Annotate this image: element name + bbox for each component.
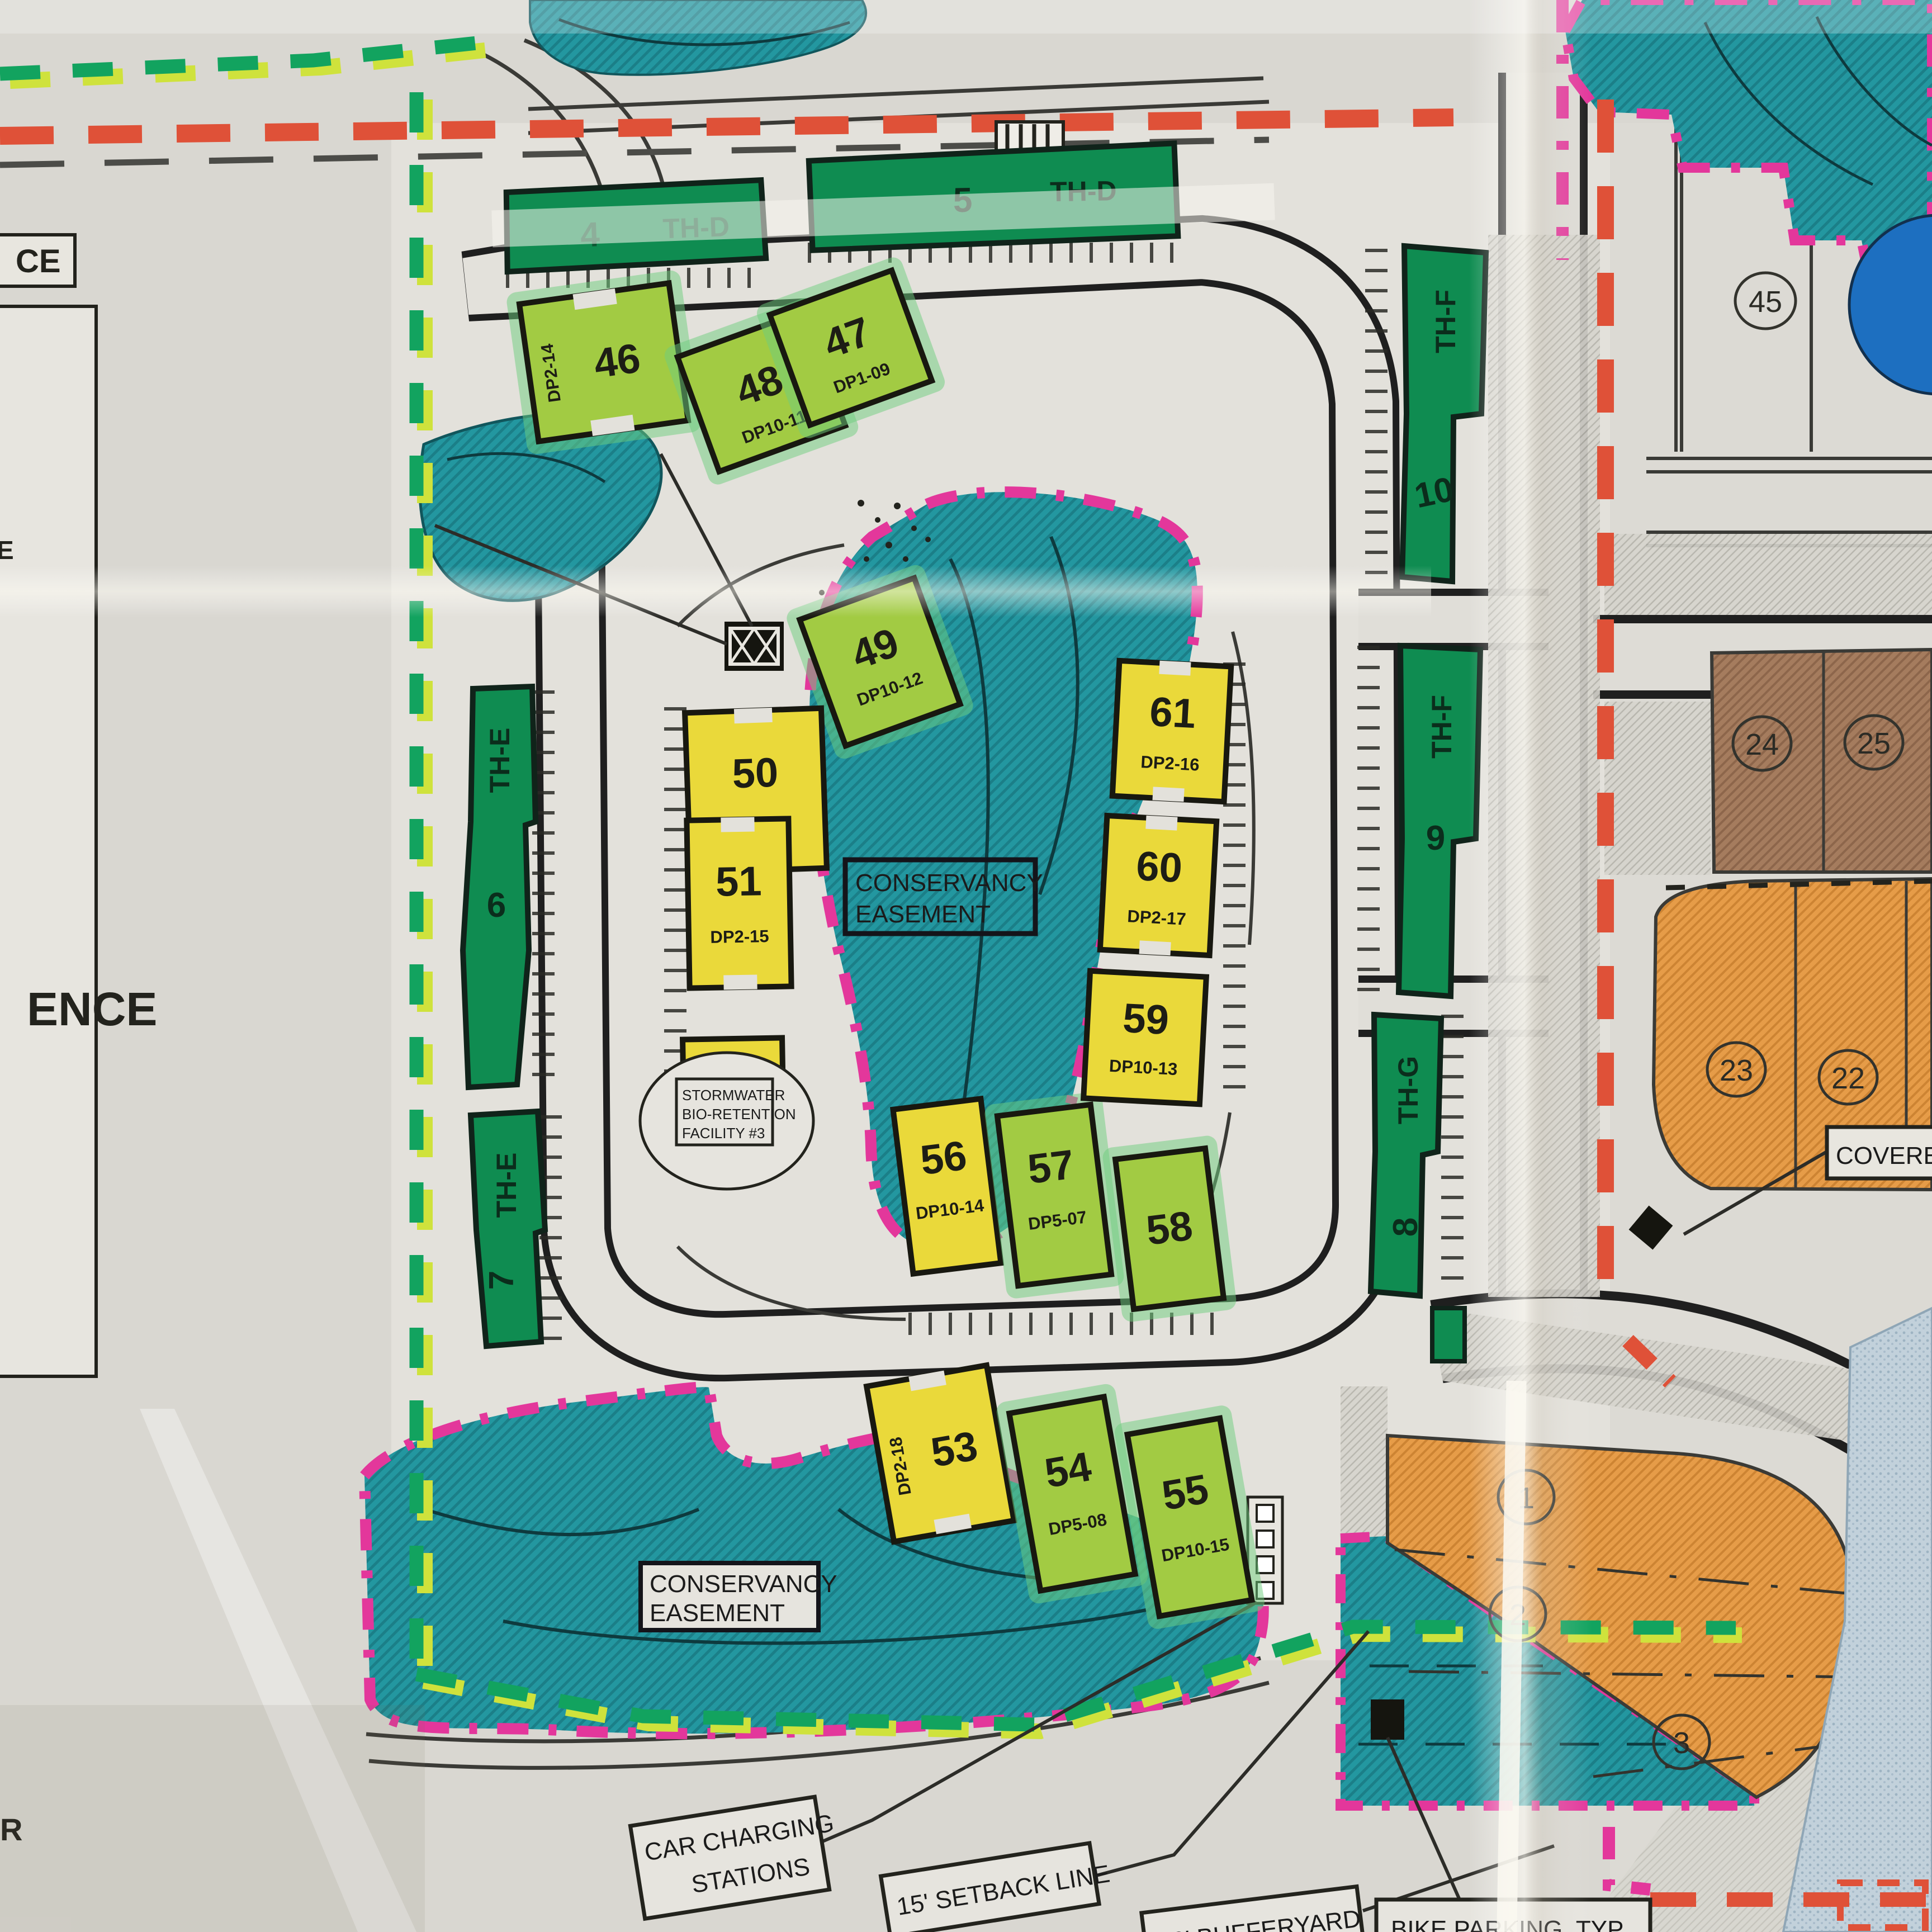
site-plan-map: CE E ENCE R [0,0,1932,1932]
building-58: 58 [1102,1135,1238,1323]
building-50-number: 50 [731,749,779,797]
townhouse-5-number: 5 [953,181,973,220]
townhouse-6-code: TH-E [484,728,515,793]
svg-text:2: 2 [1509,1598,1526,1632]
townhouse-block-6: TH-E 6 [463,686,536,1087]
bike-parking-icon [1371,1699,1404,1740]
building-55-number: 55 [1158,1465,1211,1519]
site-plan-photo: CE E ENCE R [0,0,1932,1932]
svg-text:STORMWATER: STORMWATER [682,1087,785,1104]
townhouse-9-number: 9 [1426,819,1445,858]
bridge-icon [724,622,784,671]
svg-text:BIO-RETENTION: BIO-RETENTION [682,1106,796,1123]
townhouse-5-code: TH-D [1050,175,1117,207]
building-56: 56 DP10-14 [893,1098,1001,1273]
townhouse-4-number: 4 [580,215,600,254]
svg-text:25: 25 [1857,727,1891,760]
building-61-number: 61 [1148,688,1197,737]
building-57: 57 DP5-07 [983,1091,1125,1299]
svg-text:1: 1 [1518,1481,1535,1515]
legend-panel-border [0,306,96,1376]
label-fragment-ce: CE [16,243,61,280]
svg-text:EASEMENT: EASEMENT [650,1599,785,1627]
building-59-number: 59 [1121,995,1170,1043]
building-51: 51 DP2-15 [686,816,791,990]
townhouse-6-number: 6 [487,886,506,925]
svg-text:EASEMENT: EASEMENT [855,901,991,928]
townhouse-block-5: 5 TH-D [808,143,1178,250]
svg-text:FACILITY #3: FACILITY #3 [682,1125,765,1142]
building-60: 60 DP2-17 [1100,813,1217,958]
building-61: 61 DP2-16 [1112,659,1232,804]
building-60-number: 60 [1135,842,1183,891]
building-53: DP2-18 53 [866,1363,1014,1542]
building-59-dp: DP10-13 [1109,1056,1178,1079]
building-57-number: 57 [1025,1141,1077,1192]
label-fragment-ence: ENCE [27,983,157,1035]
building-61-dp: DP2-16 [1140,752,1200,774]
svg-text:3: 3 [1673,1726,1690,1760]
building-59: 59 DP10-13 [1083,971,1206,1105]
svg-text:24: 24 [1745,728,1779,761]
townhouse-10-code: TH-F [1430,290,1461,353]
svg-text:COVERED: COVERED [1836,1142,1932,1169]
townhouse-7-number: 7 [482,1271,521,1290]
covered-label: COVERED [1827,1127,1932,1178]
building-58-number: 58 [1144,1202,1195,1253]
svg-text:22: 22 [1831,1062,1865,1095]
svg-text:BIKE PARKING, TYP: BIKE PARKING, TYP [1391,1916,1624,1932]
building-46-number: 46 [591,334,643,387]
townhouse-7-code: TH-E [491,1153,522,1218]
svg-text:23: 23 [1720,1054,1753,1087]
building-60-dp: DP2-17 [1127,906,1187,929]
svg-text:CONSERVANCY: CONSERVANCY [650,1570,837,1598]
building-56-number: 56 [918,1132,969,1183]
townhouse-8-code: TH-G [1393,1056,1424,1124]
svg-text:45: 45 [1749,285,1782,319]
building-54-number: 54 [1041,1443,1095,1497]
bike-parking-label: BIKE PARKING, TYP [1376,1900,1650,1932]
townhouse-4-code: TH-D [662,211,730,244]
stormwater-label: STORMWATER BIO-RETENTION FACILITY #3 [640,1053,813,1189]
townhouse-8-number: 8 [1386,1218,1425,1237]
building-53-number: 53 [927,1422,981,1476]
townhouse-block-4: 4 TH-D [505,180,766,272]
townhouse-9-code: TH-F [1426,695,1457,759]
label-fragment-e: E [0,536,14,565]
townhouse-10-number: 10 [1411,470,1457,516]
building-51-number: 51 [715,858,762,905]
townhouse-block-7: TH-E 7 [471,1111,545,1346]
svg-text:CONSERVANCY: CONSERVANCY [855,869,1043,897]
conservancy-easement-label-lower: CONSERVANCY EASEMENT [641,1563,837,1630]
label-fragment-r: R [0,1812,22,1847]
label-fragment-ce-box: CE [0,235,75,286]
building-51-dp: DP2-15 [710,926,769,947]
